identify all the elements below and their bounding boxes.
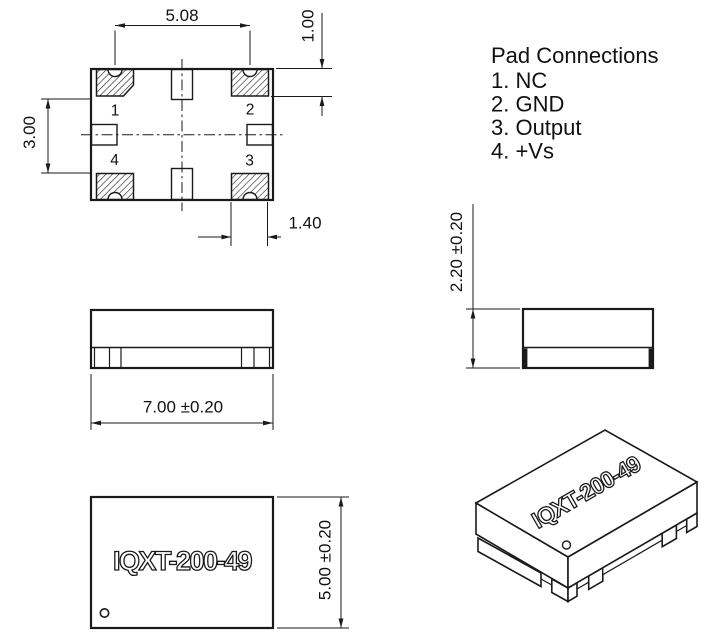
- castellation-recess-line: [676, 526, 686, 532]
- pad-3-label: 3: [245, 153, 254, 170]
- arrowhead-down: [320, 59, 325, 69]
- arrowhead-up: [471, 309, 476, 319]
- legend-item-1: 1. NC: [491, 68, 547, 93]
- arrowhead-up: [320, 97, 325, 107]
- arrowhead-left: [91, 421, 101, 426]
- front-view: 7.00 ±0.20: [91, 310, 273, 430]
- arrowhead-down: [471, 359, 476, 369]
- dim-pad-width-text: 1.40: [288, 214, 321, 233]
- dim-pad-pitch-text: 5.08: [165, 6, 198, 25]
- arrowhead-up: [46, 99, 51, 109]
- package-drawing-page: 1 2 3 4 5.08 1.00: [0, 0, 725, 634]
- dim-body-length: 7.00 ±0.20: [91, 374, 273, 430]
- iso-view: IQXT-200-49: [476, 430, 697, 602]
- end-view: 2.20 ±0.20: [447, 204, 653, 368]
- pad-connections-legend: Pad Connections 1. NC 2. GND 3. Output 4…: [491, 43, 659, 164]
- dim-pad-width: 1.40: [198, 202, 322, 246]
- arrowhead-up: [339, 497, 344, 507]
- dim-body-width-text: 5.00 ±0.20: [316, 520, 335, 600]
- pin1-indicator-dot: [100, 609, 108, 617]
- dim-body-height-text: 2.20 ±0.20: [447, 212, 466, 292]
- dim-pad-height-text: 1.00: [299, 9, 318, 42]
- pad-2-label: 2: [246, 102, 255, 119]
- legend-item-3: 3. Output: [491, 115, 582, 140]
- bottom-view: IQXT-200-49 5.00 ±0.20: [91, 497, 349, 628]
- dim-pad-pitch: 5.08: [115, 6, 250, 65]
- pin1-indicator-dot-iso: [563, 541, 571, 549]
- drawing-svg: 1 2 3 4 5.08 1.00: [0, 0, 725, 634]
- dim-body-width: 5.00 ±0.20: [277, 497, 349, 628]
- part-number-marking: IQXT-200-49: [113, 546, 253, 576]
- arrowhead-down: [339, 619, 344, 629]
- pad-1-label: 1: [111, 103, 120, 120]
- dim-inner-gap-text: 3.00: [20, 116, 39, 149]
- dim-body-height: 2.20 ±0.20: [447, 204, 520, 368]
- arrowhead-right: [240, 23, 250, 28]
- dim-body-length-text: 7.00 ±0.20: [143, 398, 223, 417]
- dim-inner-gap: 3.00: [20, 99, 90, 173]
- legend-item-2: 2. GND: [491, 92, 564, 117]
- castellation-recess-line: [541, 579, 552, 585]
- legend-item-4: 4. +Vs: [491, 139, 554, 164]
- end-pad-right: [649, 349, 653, 368]
- legend-title: Pad Connections: [491, 43, 659, 68]
- front-view-outline: [91, 310, 273, 368]
- arrowhead-left: [115, 23, 125, 28]
- castellation-recess-line: [577, 582, 589, 589]
- pad-4-label: 4: [110, 152, 119, 169]
- top-view: 1 2 3 4 5.08 1.00: [20, 6, 332, 246]
- arrowhead-down: [46, 164, 51, 174]
- arrowhead-left: [268, 235, 278, 240]
- dim-pad-height: 1.00: [271, 9, 332, 116]
- arrowhead-right: [222, 235, 232, 240]
- end-view-outline: [523, 309, 653, 368]
- arrowhead-right: [263, 421, 273, 426]
- end-pad-left: [524, 349, 528, 368]
